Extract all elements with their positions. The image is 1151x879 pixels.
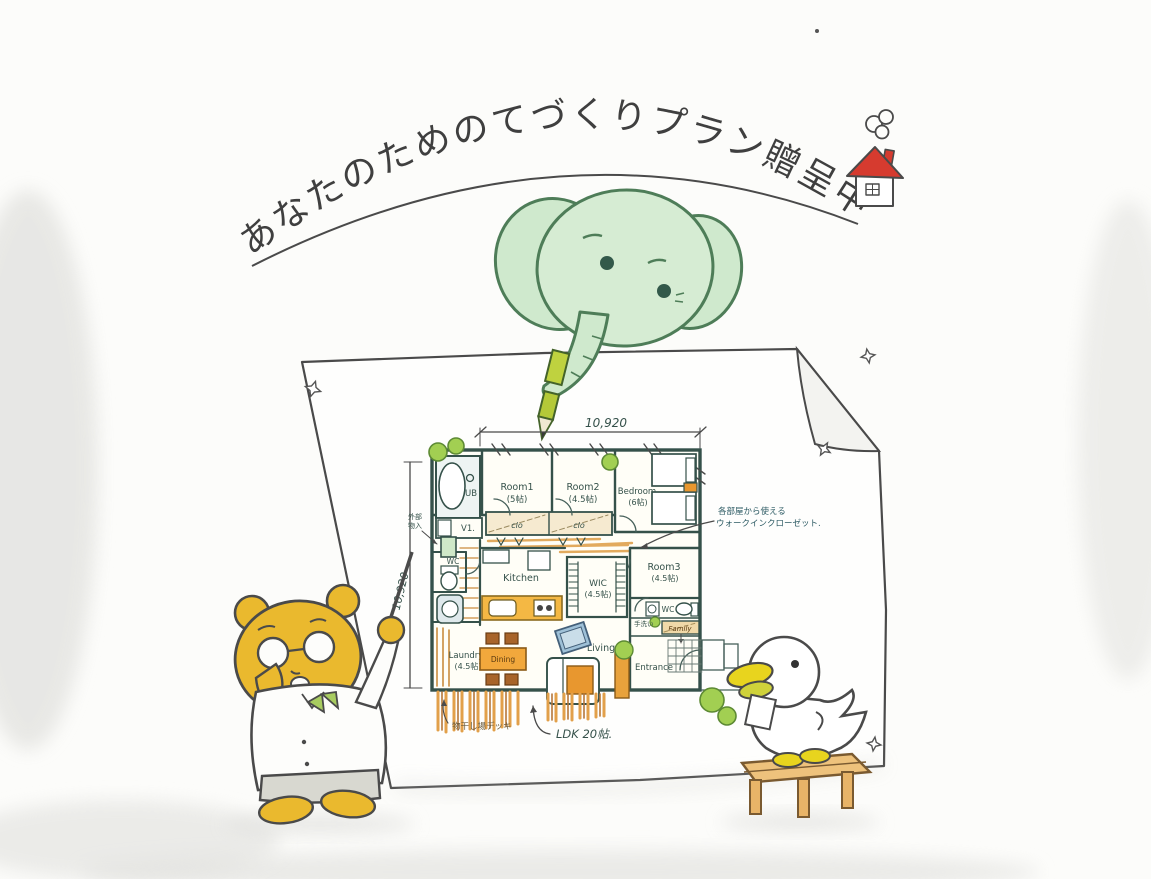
svg-text:ウォークインクローゼット.: ウォークインクローゼット. <box>716 518 821 529</box>
indoor-plant-icon <box>615 641 633 659</box>
bedroom-size: (6帖) <box>628 497 647 507</box>
storage-box <box>441 537 456 557</box>
svg-text:LDK 20帖.: LDK 20帖. <box>556 727 612 741</box>
washing-machine-icon <box>437 595 463 623</box>
elephant-right-eye <box>657 284 671 298</box>
wc-right-label: WC <box>662 605 675 614</box>
wc-left-label: WC <box>447 557 460 566</box>
svg-text:外部: 外部 <box>408 512 422 521</box>
family-label: Family <box>668 625 692 633</box>
bedroom-label: Bedroom <box>618 487 656 497</box>
bathtub-icon <box>439 463 465 509</box>
toilet-icon-left <box>441 572 457 590</box>
handwash-note: 手洗い <box>634 619 654 628</box>
sofa-cushion <box>567 666 593 694</box>
bush-icon <box>429 443 447 461</box>
ub-label: UB <box>465 489 477 499</box>
bathroom-ub: UB <box>436 456 480 518</box>
fridge-icon <box>528 551 550 570</box>
chair-icon <box>505 674 518 685</box>
house-icon <box>847 110 903 206</box>
room2-label: Room2 <box>566 482 599 493</box>
chair-icon <box>486 633 499 644</box>
room3-size: (4.5帖) <box>652 573 679 583</box>
laundry-size: (4.5帖) <box>455 661 482 671</box>
bear-right-paw <box>378 617 404 643</box>
room3-label: Room3 <box>647 562 680 573</box>
room1-size: (5帖) <box>507 494 528 505</box>
vanity-label: V1. <box>461 524 475 534</box>
svg-text:各部屋から使える: 各部屋から使える <box>718 506 786 517</box>
duck-left-foot <box>773 753 803 767</box>
chair-icon <box>505 633 518 644</box>
closet1-label: clo <box>511 521 523 530</box>
bush-icon <box>718 707 736 725</box>
glasses-right-lens <box>304 632 334 662</box>
chair-icon <box>486 674 499 685</box>
wic-room: WIC (4.5帖) <box>567 557 627 617</box>
duck-card <box>745 695 776 730</box>
dining-label: Dining <box>491 655 515 664</box>
bush-icon <box>602 454 618 470</box>
nightstand-icon <box>684 483 697 492</box>
wic-size: (4.5帖) <box>585 589 612 599</box>
closet2-label: clo <box>573 521 585 530</box>
glasses-left-lens <box>258 638 288 668</box>
ink-dot <box>815 29 819 33</box>
duck-eye <box>791 660 799 668</box>
entrance-label: Entrance <box>635 663 673 673</box>
sink-icon <box>489 600 516 616</box>
dim-top-label: 10,920 <box>585 416 627 430</box>
bush-icon <box>448 438 464 454</box>
kitchen-label: Kitchen <box>503 573 539 584</box>
bush-icon <box>700 688 724 712</box>
toilet-icon-right <box>676 603 692 615</box>
smoke-icon <box>866 110 893 139</box>
room2-size: (4.5帖) <box>569 494 598 505</box>
sparkle-icon <box>860 348 876 364</box>
svg-text:物干し場デッキ: 物干し場デッキ <box>452 721 512 732</box>
laundry-label: Laundry <box>449 651 484 661</box>
wic-label: WIC <box>589 579 607 589</box>
duck-right-foot <box>800 749 830 763</box>
elephant-left-eye <box>600 256 614 270</box>
vanity-room: V1. <box>436 518 482 538</box>
room1-label: Room1 <box>500 482 533 493</box>
elephant-character <box>479 183 754 352</box>
stool <box>742 754 870 817</box>
illustration-canvas: あなたのためのてづくりプラン贈呈中 <box>0 0 1151 879</box>
svg-text:物入: 物入 <box>408 521 422 530</box>
